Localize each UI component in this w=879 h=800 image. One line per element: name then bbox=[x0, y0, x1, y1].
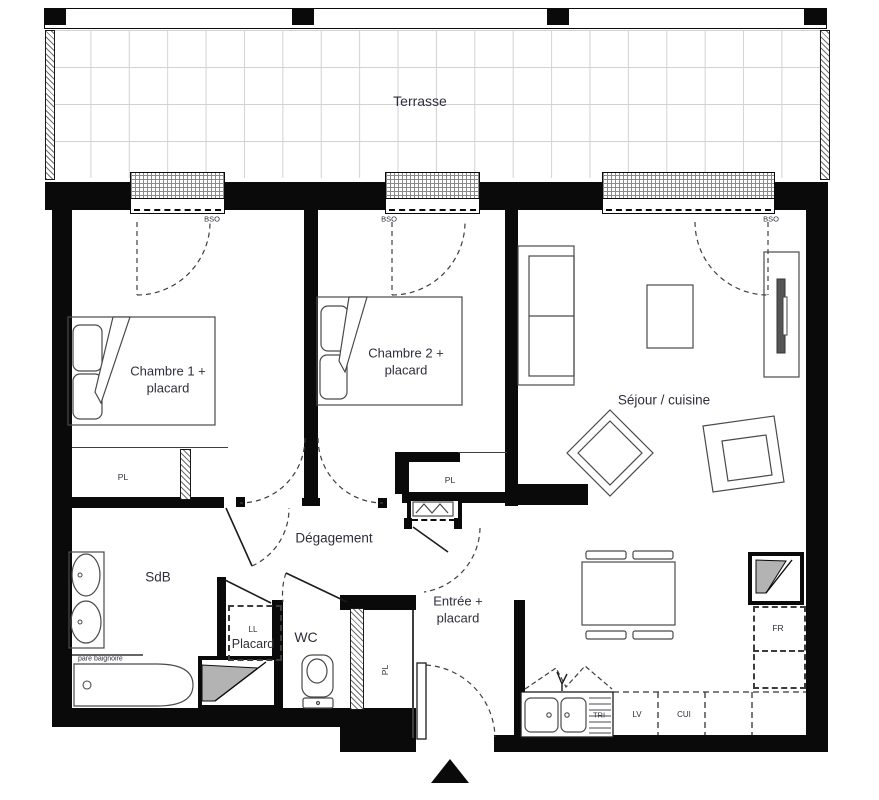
hood-symbol bbox=[525, 666, 612, 689]
room-label-bedroom2-line1: Chambre 2 + bbox=[368, 347, 444, 360]
room-label-closet: Placard bbox=[232, 638, 274, 651]
washbasin bbox=[72, 554, 100, 596]
coffee-table bbox=[647, 285, 693, 348]
bathtub bbox=[74, 664, 193, 706]
dining-chair bbox=[586, 551, 626, 559]
bedroom2-door-arc bbox=[318, 438, 383, 503]
cooker-tag: CUI bbox=[677, 711, 691, 719]
entry-hall-door-arc bbox=[424, 528, 480, 592]
room-label-living: Séjour / cuisine bbox=[618, 393, 710, 407]
room-label-entry-line2: placard bbox=[437, 612, 480, 625]
room-label-bathroom: SdB bbox=[145, 570, 171, 584]
room-label-wc: WC bbox=[294, 630, 317, 644]
window-swing-arcs bbox=[137, 222, 768, 295]
room-label-terrace: Terrasse bbox=[393, 94, 447, 108]
bso-tag: BSO bbox=[763, 215, 779, 223]
room-label-entry-line1: Entrée + bbox=[433, 595, 483, 608]
toilet-tank bbox=[303, 698, 333, 708]
closet-tag-entry: PL bbox=[381, 665, 390, 675]
tv-unit bbox=[764, 252, 799, 377]
radiator-symbol bbox=[413, 502, 453, 516]
dining-table bbox=[582, 562, 675, 625]
sofa bbox=[518, 246, 574, 385]
side-table-diamond bbox=[567, 410, 653, 496]
toilet bbox=[302, 655, 333, 708]
kitchen-counter bbox=[521, 666, 806, 737]
dining-set bbox=[582, 551, 675, 639]
wc-door-arc bbox=[282, 573, 286, 602]
entrance-door-arc bbox=[426, 665, 495, 737]
floor-plan: Terrasse BSO BSO BSO Chambre 1 + placard… bbox=[0, 0, 879, 800]
room-label-bedroom1-line2: placard bbox=[147, 382, 190, 395]
tri-tag: TRI bbox=[593, 711, 605, 719]
dining-chair bbox=[586, 631, 626, 639]
dining-chair bbox=[633, 551, 673, 559]
entrance-arrow bbox=[431, 759, 469, 783]
fridge-tag: FR bbox=[772, 624, 783, 633]
room-label-bedroom1-line1: Chambre 1 + bbox=[130, 365, 206, 378]
dishwasher-tag: LV bbox=[632, 711, 641, 719]
armchair bbox=[703, 416, 784, 492]
bedroom1-door-arc bbox=[240, 438, 305, 503]
room-label-bedroom2-line2: placard bbox=[385, 364, 428, 377]
room-label-hallway: Dégagement bbox=[295, 531, 372, 545]
closet-tag-bedroom1: PL bbox=[118, 473, 128, 482]
shaft-triangles bbox=[202, 560, 792, 701]
toilet-bowl bbox=[302, 655, 333, 697]
entrance-door-leaf bbox=[417, 663, 426, 739]
washbasin bbox=[71, 601, 101, 643]
closet-tag-bedroom2: PL bbox=[445, 476, 455, 485]
door-swing-arcs bbox=[240, 438, 495, 737]
entry-hall-door-leaf bbox=[413, 527, 448, 552]
bathroom-door-arc bbox=[252, 508, 289, 566]
bathroom-fixtures bbox=[69, 552, 193, 706]
dining-chair bbox=[633, 631, 673, 639]
wc-door-leaf bbox=[286, 573, 347, 602]
bso-tag: BSO bbox=[204, 215, 220, 223]
washing-machine-tag: LL bbox=[249, 626, 258, 634]
bath-screen-tag: pare baignoire bbox=[78, 656, 123, 663]
plan-linework bbox=[0, 0, 879, 800]
closet-door-leaf bbox=[225, 580, 271, 603]
bathtub-drain bbox=[83, 681, 91, 689]
bso-tag: BSO bbox=[381, 215, 397, 223]
bathroom-door-leaf bbox=[226, 508, 252, 566]
